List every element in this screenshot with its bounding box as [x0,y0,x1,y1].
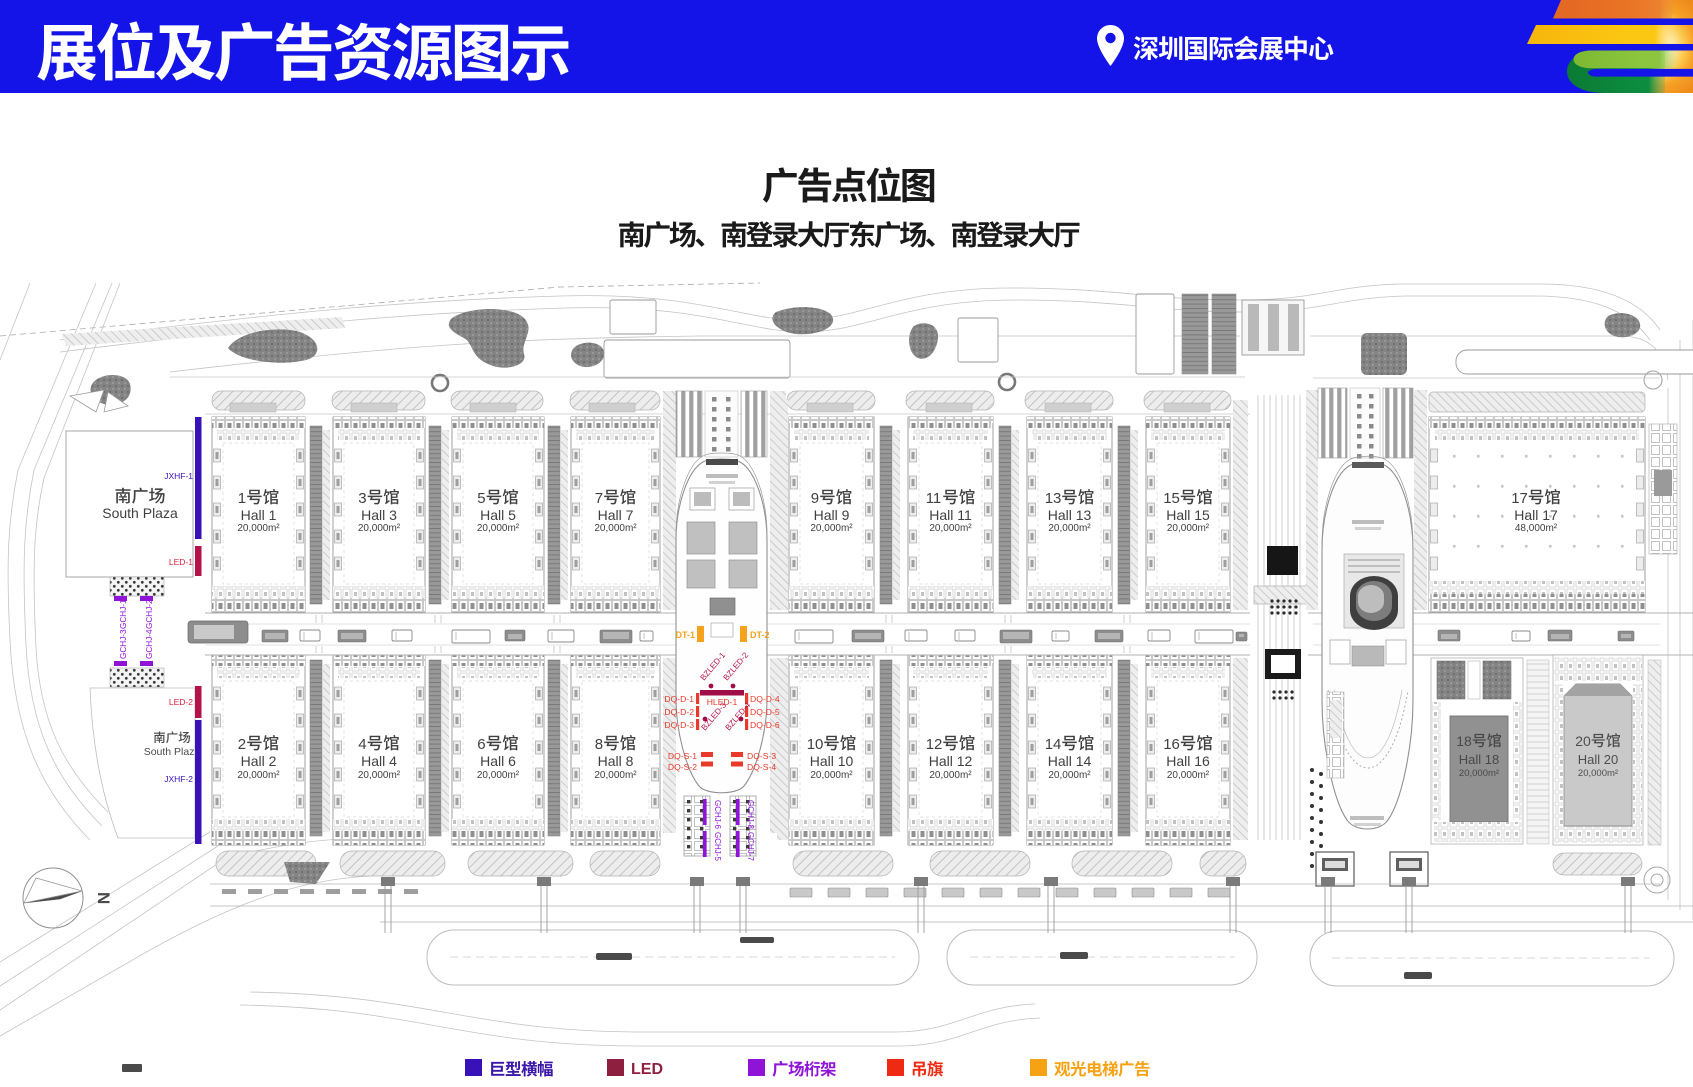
svg-text:GCHJ-3: GCHJ-3 [119,629,128,659]
svg-text:Hall 3: Hall 3 [361,507,397,523]
svg-text:20,000m²: 20,000m² [477,770,520,781]
svg-text:20,000m²: 20,000m² [594,523,637,534]
svg-text:20,000m²: 20,000m² [477,523,520,534]
svg-text:Hall 10: Hall 10 [810,753,854,769]
svg-text:20: 20 [1575,733,1591,749]
svg-text:DQ-D-3: DQ-D-3 [664,720,694,730]
svg-text:LED: LED [631,1061,663,1078]
svg-text:Hall 4: Hall 4 [361,753,397,769]
svg-text:GCHJ-6: GCHJ-6 [713,800,722,829]
svg-text:DT-2: DT-2 [750,630,770,640]
svg-text:Hall 11: Hall 11 [929,507,972,523]
svg-text:20,000m²: 20,000m² [1459,768,1499,779]
svg-text:Hall 5: Hall 5 [480,507,516,523]
svg-text:20,000m²: 20,000m² [358,770,401,781]
svg-text:17: 17 [1511,490,1528,507]
svg-text:DQ-S-2: DQ-S-2 [668,762,697,772]
svg-text:Hall 20: Hall 20 [1578,752,1618,767]
svg-text:Hall 9: Hall 9 [814,507,850,523]
svg-text:1: 1 [238,490,246,507]
svg-text:11: 11 [926,490,942,507]
svg-text:JXHF-2: JXHF-2 [164,774,193,784]
svg-text:GCHJ-7: GCHJ-7 [746,832,755,861]
svg-text:20,000m²: 20,000m² [1167,770,1210,781]
svg-text:20,000m²: 20,000m² [1048,523,1091,534]
svg-text:DQ-S-3: DQ-S-3 [747,751,776,761]
svg-text:12: 12 [926,736,943,753]
svg-text:Hall 12: Hall 12 [929,753,973,769]
svg-text:DQ-D-4: DQ-D-4 [750,694,780,704]
svg-text:DQ-D-1: DQ-D-1 [664,694,694,704]
svg-text:Hall 15: Hall 15 [1166,507,1210,523]
svg-text:JXHF-1: JXHF-1 [164,471,193,481]
svg-text:South Plaza: South Plaza [144,746,201,758]
svg-text:Hall 1: Hall 1 [241,507,277,523]
svg-text:20,000m²: 20,000m² [1578,768,1618,779]
svg-text:16: 16 [1163,736,1180,753]
svg-text:GCHJ-8: GCHJ-8 [746,800,755,829]
svg-text:5: 5 [477,490,485,507]
svg-text:10: 10 [807,736,824,753]
svg-text:South Plaza: South Plaza [102,505,178,521]
svg-text:DQ-D-5: DQ-D-5 [750,707,780,717]
svg-text:LED-2: LED-2 [169,697,193,707]
svg-text:GCHJ-1: GCHJ-1 [119,599,128,629]
svg-text:GCHJ-5: GCHJ-5 [713,832,722,861]
svg-text:2: 2 [238,736,246,753]
svg-text:20,000m²: 20,000m² [1167,523,1210,534]
svg-text:20,000m²: 20,000m² [237,770,280,781]
svg-text:DT-1: DT-1 [675,630,695,640]
svg-text:Hall 8: Hall 8 [598,753,634,769]
svg-text:N: N [94,892,113,904]
svg-text:Hall 7: Hall 7 [598,507,634,523]
svg-text:13: 13 [1045,490,1062,507]
svg-text:15: 15 [1163,490,1180,507]
svg-text:20,000m²: 20,000m² [810,523,853,534]
svg-text:20,000m²: 20,000m² [1048,770,1091,781]
svg-text:3: 3 [358,490,366,507]
svg-text:Hall 14: Hall 14 [1048,753,1092,769]
svg-text:9: 9 [811,490,819,507]
svg-text:4: 4 [358,736,366,753]
svg-text:DQ-D-6: DQ-D-6 [750,720,780,730]
svg-text:20,000m²: 20,000m² [929,770,972,781]
svg-text:GCHJ-2: GCHJ-2 [145,599,154,629]
svg-text:48,000m²: 48,000m² [1515,523,1558,534]
svg-text:DQ-S-1: DQ-S-1 [668,751,697,761]
svg-text:7: 7 [595,490,603,507]
svg-text:6: 6 [477,736,485,753]
svg-text:GCHJ-4: GCHJ-4 [145,629,154,659]
svg-text:20,000m²: 20,000m² [810,770,853,781]
svg-text:Hall 6: Hall 6 [480,753,516,769]
svg-text:20,000m²: 20,000m² [237,523,280,534]
svg-text:8: 8 [595,736,603,753]
svg-text:LED-1: LED-1 [169,557,193,567]
svg-text:Hall 18: Hall 18 [1459,752,1499,767]
svg-text:DQ-S-4: DQ-S-4 [747,762,776,772]
svg-text:Hall 17: Hall 17 [1514,507,1558,523]
svg-text:18: 18 [1456,733,1472,749]
svg-text:Hall 13: Hall 13 [1048,507,1092,523]
svg-text:20,000m²: 20,000m² [358,523,401,534]
svg-text:20,000m²: 20,000m² [929,523,972,534]
svg-text:Hall 2: Hall 2 [241,753,277,769]
svg-text:14: 14 [1045,736,1062,753]
svg-text:20,000m²: 20,000m² [594,770,637,781]
svg-text:Hall 16: Hall 16 [1166,753,1210,769]
svg-text:DQ-D-2: DQ-D-2 [664,707,694,717]
